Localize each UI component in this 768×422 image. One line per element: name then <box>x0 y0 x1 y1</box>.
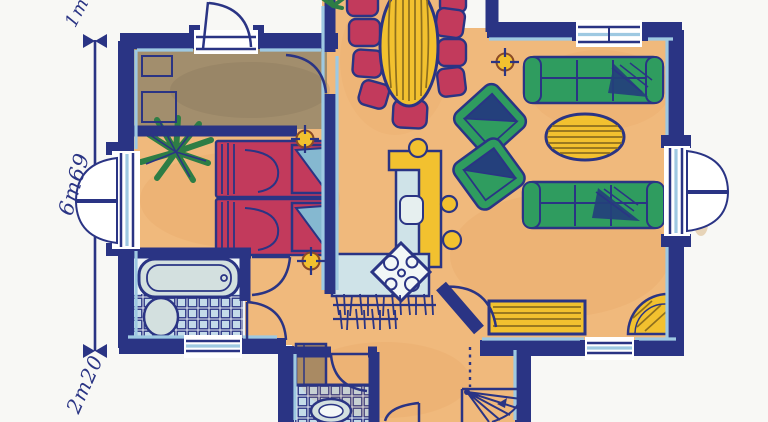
twin-bed-2 <box>216 199 329 255</box>
bathtub <box>139 259 239 297</box>
twin-bed-1 <box>216 141 329 197</box>
bathroom-window <box>184 335 242 358</box>
coffee-table <box>546 114 624 160</box>
sink <box>400 196 423 224</box>
entrance-door <box>194 2 258 54</box>
french-doors <box>664 146 728 236</box>
bar-stool <box>441 196 457 212</box>
bar-stool <box>409 139 427 157</box>
bar-stool <box>443 231 461 249</box>
living-window-bottom <box>585 337 634 360</box>
sideboard <box>489 301 585 334</box>
living-window-top <box>576 20 642 47</box>
floor-plan-page: 1m 6m69 2m20 <box>0 0 768 422</box>
sofa-middle <box>523 182 664 228</box>
sofa-top <box>524 57 663 103</box>
toilet <box>144 298 178 336</box>
floor-plan-drawing <box>0 0 768 422</box>
